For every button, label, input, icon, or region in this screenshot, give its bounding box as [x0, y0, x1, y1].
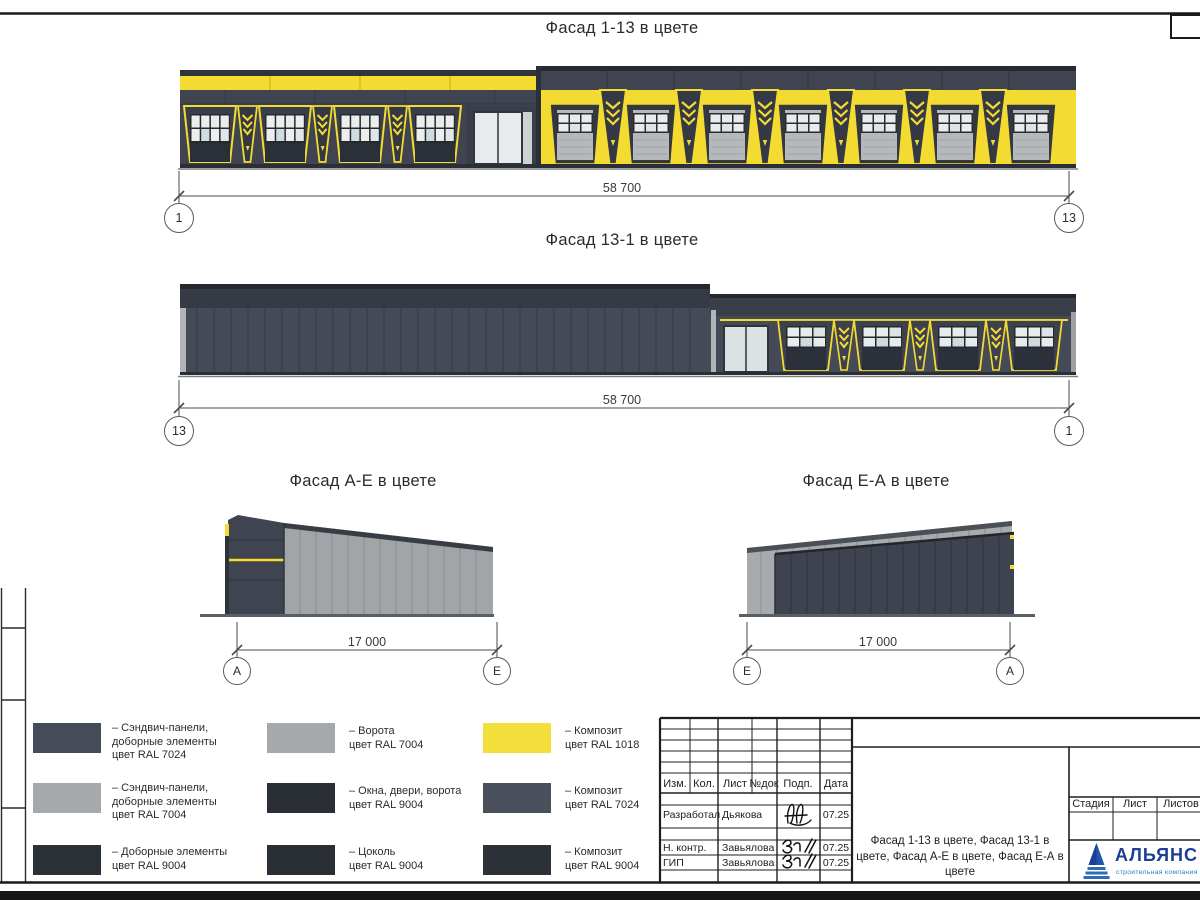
- legend-swatch: [267, 845, 335, 875]
- tb-col-stage: Стадия: [1072, 798, 1110, 810]
- company-logo-subtitle: строительная компания: [1116, 869, 1198, 876]
- facade-13-1-title: Фасад 13-1 в цвете: [546, 231, 699, 250]
- company-logo-name: АЛЬЯНС: [1115, 845, 1198, 866]
- tb-name-gip: Завьялова: [722, 857, 774, 869]
- tb-date-ncontrol: 07.25: [821, 842, 851, 854]
- axis-marker-a2: А: [996, 657, 1024, 685]
- facade-13-1-right-section: [710, 294, 1076, 372]
- axis-marker-a: А: [223, 657, 251, 685]
- dim-length-facade-e-a: 17 000: [859, 635, 897, 649]
- facade-1-13-right-section: [540, 66, 1076, 168]
- legend-label: – Композит цвет RAL 7024: [565, 785, 639, 812]
- legend-swatch: [33, 783, 101, 813]
- facade-13-1-drawing: [178, 282, 1078, 380]
- tb-col-kol: Кол.: [693, 778, 715, 790]
- facade-13-1-left-section: [180, 284, 710, 372]
- signature-ncontrol: [781, 838, 821, 854]
- facade-e-a-drawing: [735, 510, 1045, 622]
- tb-date-developer: 07.25: [821, 809, 851, 821]
- drawing-sheet: Фасад 1-13 в цвете Фасад 13-1 в цвете Фа…: [0, 0, 1200, 900]
- tb-role-ncontrol: Н. контр.: [663, 842, 706, 854]
- axis-marker-1b: 1: [1054, 416, 1084, 446]
- tb-col-sheets: Листов: [1163, 798, 1199, 810]
- axis-marker-e2: Е: [733, 657, 761, 685]
- tb-role-gip: ГИП: [663, 857, 684, 869]
- company-logo-icon: [1083, 843, 1110, 881]
- legend-swatch: [483, 783, 551, 813]
- legend-swatch: [267, 783, 335, 813]
- tb-name-developer: Дьякова: [722, 809, 762, 821]
- tb-date-gip: 07.25: [821, 857, 851, 869]
- tb-col-sheet: Лист: [1123, 798, 1147, 810]
- tb-col-list: Лист: [723, 778, 747, 790]
- tb-doc-title: Фасад 1-13 в цвете, Фасад 13-1 в цвете, …: [854, 834, 1066, 881]
- facade-e-a-title: Фасад Е-А в цвете: [802, 472, 949, 491]
- signature-developer: [783, 799, 817, 826]
- dark-gable-block: [225, 515, 284, 614]
- glass-door: [724, 326, 768, 372]
- light-panel-wall: [284, 510, 493, 614]
- tb-col-izm: Изм.: [663, 778, 687, 790]
- facade-1-13-left-section: [180, 70, 540, 168]
- legend-label: – Цоколь цвет RAL 9004: [349, 846, 423, 873]
- legend-swatch: [483, 845, 551, 875]
- legend-label: – Доборные элементы цвет RAL 9004: [112, 846, 227, 873]
- axis-marker-13b: 13: [164, 416, 194, 446]
- tb-col-ndok: №док: [749, 778, 778, 790]
- sheet-edge-strip: [0, 891, 1200, 900]
- facade-a-e-drawing: [192, 510, 502, 622]
- tb-role-developer: Разработал: [663, 809, 720, 821]
- legend-label: – Сэндвич-панели, доборные элементы цвет…: [112, 782, 217, 823]
- dim-length-facade-1-13: 58 700: [603, 181, 641, 195]
- legend-label: – Композит цвет RAL 1018: [565, 725, 639, 752]
- facade-a-e-title: Фасад А-Е в цвете: [289, 472, 436, 491]
- legend-label: – Окна, двери, ворота цвет RAL 9004: [349, 785, 461, 812]
- legend-label: – Сэндвич-панели, доборные элементы цвет…: [112, 722, 217, 763]
- legend-swatch: [33, 845, 101, 875]
- legend-label: – Композит цвет RAL 9004: [565, 846, 639, 873]
- signature-gip: [781, 853, 821, 869]
- section-junction: [536, 66, 541, 168]
- dim-length-facade-a-e: 17 000: [348, 635, 386, 649]
- entrance-door: [466, 106, 536, 164]
- facade-1-13-title: Фасад 1-13 в цвете: [546, 19, 699, 38]
- tb-name-ncontrol: Завьялова: [722, 842, 774, 854]
- tb-col-podp: Подп.: [783, 778, 812, 790]
- axis-marker-1: 1: [164, 203, 194, 233]
- axis-marker-13: 13: [1054, 203, 1084, 233]
- facade-1-13-drawing: [178, 66, 1078, 172]
- dim-length-facade-13-1: 58 700: [603, 393, 641, 407]
- legend-label: – Ворота цвет RAL 7004: [349, 725, 423, 752]
- axis-marker-e: Е: [483, 657, 511, 685]
- legend-swatch: [33, 723, 101, 753]
- legend-swatch: [483, 723, 551, 753]
- tb-col-data: Дата: [824, 778, 848, 790]
- legend-swatch: [267, 723, 335, 753]
